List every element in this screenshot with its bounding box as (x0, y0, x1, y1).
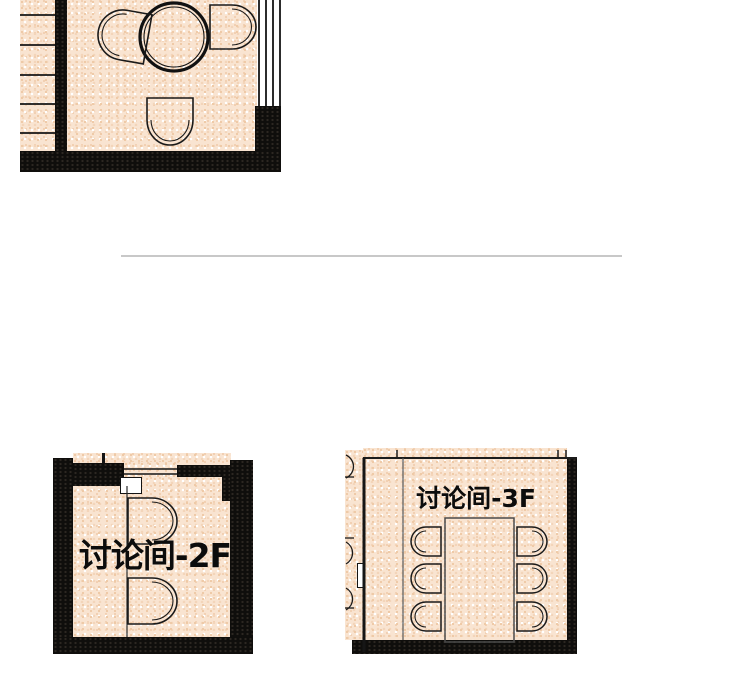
chair-icon (517, 564, 547, 593)
room-label: 讨论间-3F (372, 486, 580, 512)
top-wall-line (363, 450, 577, 458)
chair-icon (411, 527, 441, 556)
furniture-layer (340, 445, 580, 657)
chair-icon (128, 578, 177, 624)
chair-icon (147, 98, 193, 145)
chair-icon (411, 602, 441, 631)
floorplan-room-3f: 讨论间-3F (340, 445, 580, 657)
wall-tick (102, 453, 105, 463)
window-mullions (259, 0, 280, 106)
chair-icon (517, 527, 547, 556)
room-label: 讨论间-2F (50, 539, 260, 574)
chair-icon (210, 5, 256, 49)
chair-icon (94, 6, 152, 64)
floorplan-top-partial (20, 0, 282, 173)
divider-line (121, 255, 622, 257)
floorplan-room-2f: 讨论间-2F (45, 450, 260, 660)
adjacent-room-fragments (345, 455, 354, 610)
table-icon (445, 518, 514, 642)
floorplan-page: 讨论间-2F (0, 0, 750, 695)
chair-icon (411, 564, 441, 593)
door-track-lines (124, 469, 177, 474)
chair-icon (517, 602, 547, 631)
stair-rungs (20, 15, 55, 133)
round-table-icon (140, 3, 208, 71)
furniture-layer (20, 0, 282, 173)
